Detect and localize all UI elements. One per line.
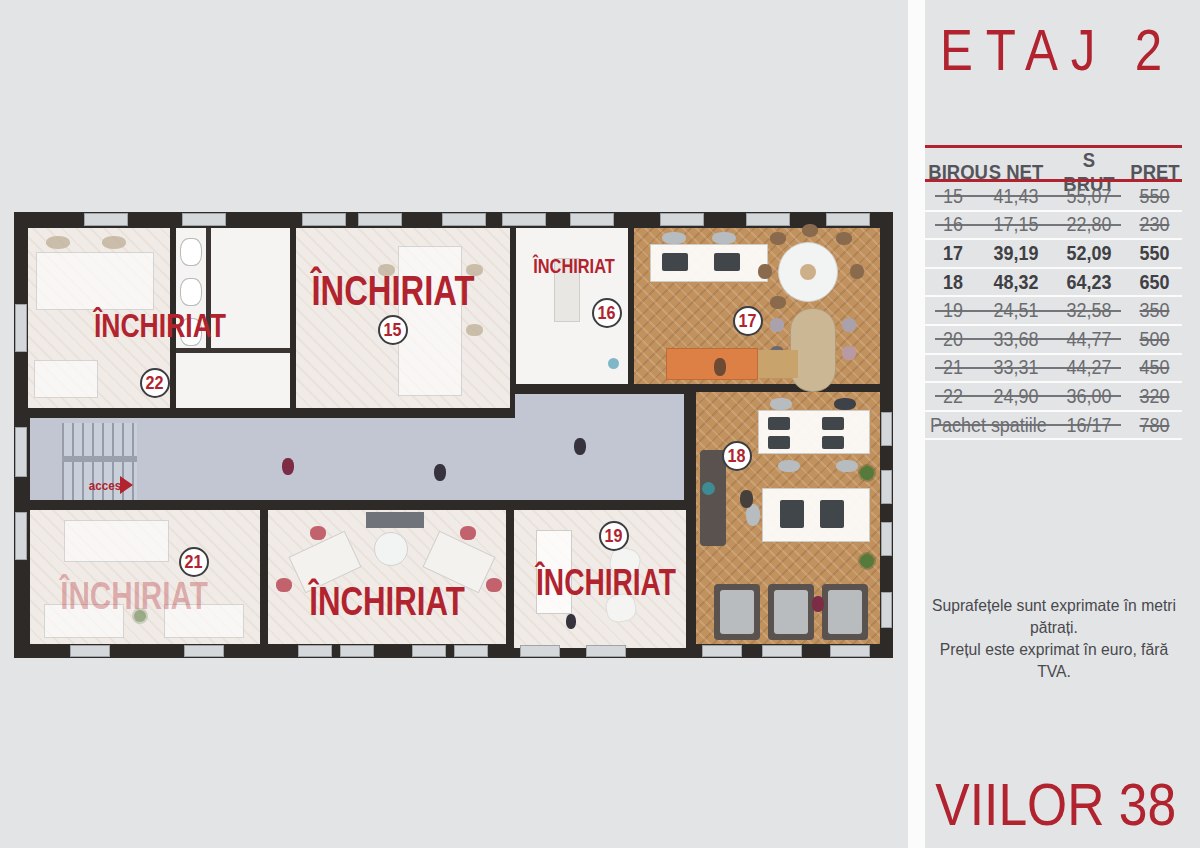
stair-landing (62, 456, 137, 462)
monitor (714, 253, 740, 271)
chair (460, 526, 476, 540)
table-row-19: 19 24,51 32,58 350 (925, 297, 1182, 326)
room-badge-18: 18 (722, 441, 752, 471)
chair (466, 324, 483, 336)
plant (860, 554, 874, 568)
chair (486, 578, 502, 592)
sofa-cushion (720, 590, 754, 634)
desk (36, 252, 154, 310)
building-name: VIILOR 38 (935, 770, 1172, 836)
window (298, 645, 332, 657)
sofa (822, 584, 868, 640)
sofa-cushion (828, 590, 862, 634)
window (570, 213, 614, 226)
cell-brut: 64,23 (1054, 271, 1124, 294)
cell-brut: 44,27 (1054, 356, 1124, 379)
cell-pret: 550 (1129, 242, 1180, 265)
cell-birou: 19 (927, 299, 979, 322)
footnote-line2: Prețul este exprimat în euro, fără TVA. (923, 638, 1185, 682)
monitor (822, 436, 844, 449)
plant (860, 466, 874, 480)
couch (700, 450, 726, 546)
room-badge-21: 21 (179, 547, 209, 577)
cell-net: 41,43 (984, 185, 1048, 208)
room-badge-17: 17 (733, 306, 763, 336)
sofa (768, 584, 814, 640)
chair (662, 232, 686, 244)
window (454, 645, 488, 657)
window (830, 645, 870, 657)
window (15, 304, 27, 352)
cell-pret: 320 (1129, 385, 1180, 408)
bathroom-divider-wall (176, 348, 290, 353)
chair (46, 236, 70, 249)
table-row-21: 21 33,31 44,27 450 (925, 355, 1182, 384)
cell-net: 24,90 (984, 385, 1048, 408)
desk (34, 360, 98, 398)
cell-brut: 52,09 (1054, 242, 1124, 265)
window (586, 645, 626, 657)
rented-label-room22: ÎNCHIRIAT (94, 306, 226, 345)
window (184, 645, 224, 657)
table-row-17: 17 39,19 52,09 550 (925, 240, 1182, 269)
rented-label-room20: ÎNCHIRIAT (309, 579, 464, 624)
chair (770, 296, 786, 309)
desk (64, 520, 169, 562)
room-badge-16: 16 (592, 298, 622, 328)
chair (310, 526, 326, 540)
window (70, 645, 110, 657)
window (358, 213, 402, 226)
room-number: 22 (146, 372, 164, 394)
cell-pret: 350 (1129, 299, 1180, 322)
entrance-door (15, 427, 27, 477)
rented-label-room16: ÎNCHIRIAT (533, 254, 615, 278)
window (762, 645, 802, 657)
cell-birou: 20 (927, 328, 979, 351)
window (746, 213, 790, 226)
cell-birou: 15 (927, 185, 979, 208)
room-badge-15: 15 (378, 315, 408, 345)
cell-pret: 550 (1129, 185, 1180, 208)
window (15, 512, 27, 560)
monitor (768, 417, 790, 430)
cell-net: 33,31 (984, 356, 1048, 379)
floor-title: ETAJ 2 (940, 16, 1168, 80)
floorplan-poster: acces ÎNCHIRIAT ÎNCHIRIAT ÎNCHIRIAT ÎNCH… (0, 0, 1200, 848)
cell-pret: 450 (1129, 356, 1180, 379)
table-center (800, 264, 816, 280)
reception-desk (666, 348, 758, 380)
table-row-18: 18 48,32 64,23 650 (925, 269, 1182, 298)
window (340, 645, 374, 657)
chair (712, 232, 736, 244)
cell-birou: 22 (927, 385, 979, 408)
cell-brut: 22,80 (1054, 213, 1124, 236)
person (574, 438, 586, 455)
cell-net: 24,51 (984, 299, 1048, 322)
table-row-20: 20 33,68 44,77 500 (925, 326, 1182, 355)
cell-pachet-label: Pachet spatiile (930, 414, 1046, 437)
person (282, 458, 294, 475)
window (881, 592, 892, 628)
desk (762, 488, 870, 542)
table-row-15: 15 41,43 55,07 550 (925, 183, 1182, 212)
room-badge-19: 19 (599, 521, 629, 551)
corridor-right (515, 394, 684, 500)
cell-pret: 230 (1129, 213, 1180, 236)
window (881, 522, 892, 556)
room-number: 18 (728, 445, 746, 467)
monitor (820, 500, 844, 528)
rented-watermark-room21: ÎNCHIRIAT (60, 575, 208, 618)
room-number: 15 (384, 319, 402, 341)
window (84, 213, 128, 226)
table-header: BIROU S NET S BRUT PRET (925, 148, 1182, 179)
round-table (374, 532, 408, 566)
price-table: BIROU S NET S BRUT PRET 15 41,43 55,07 5… (925, 145, 1182, 445)
cell-net: 39,19 (984, 242, 1048, 265)
chair (850, 264, 864, 279)
table-row-22: 22 24,90 36,00 320 (925, 383, 1182, 412)
room-badge-22: 22 (140, 368, 170, 398)
cell-net: 48,32 (984, 271, 1048, 294)
access-arrow-icon (120, 476, 133, 494)
chair (276, 578, 292, 592)
cell-brut: 32,58 (1054, 299, 1124, 322)
window (881, 470, 892, 504)
cell-pret: 780 (1129, 414, 1180, 437)
table-row-16: 16 17,15 22,80 230 (925, 212, 1182, 241)
person (714, 358, 726, 376)
chair (836, 232, 852, 245)
chair (770, 398, 792, 410)
cell-birou: 18 (927, 271, 979, 294)
window (660, 213, 704, 226)
cell-pret: 650 (1129, 271, 1180, 294)
cell-brut: 44,77 (1054, 328, 1124, 351)
person (434, 464, 446, 481)
cell-brut: 55,07 (1054, 185, 1124, 208)
chair (770, 318, 784, 332)
window (502, 213, 546, 226)
console-table (366, 512, 424, 528)
window (881, 412, 892, 446)
rented-label-room15: ÎNCHIRIAT (311, 267, 474, 315)
window (302, 213, 346, 226)
chair (842, 318, 856, 332)
window (520, 645, 560, 657)
cell-pret: 500 (1129, 328, 1180, 351)
person (566, 614, 576, 629)
access-label: acces (89, 478, 122, 493)
chair (778, 460, 800, 472)
room-number: 21 (185, 551, 203, 573)
rented-label-room19: ÎNCHIRIAT (536, 562, 676, 604)
chair (758, 264, 772, 279)
chair (834, 398, 856, 410)
chair (802, 224, 818, 237)
monitor (768, 436, 790, 449)
chair (836, 460, 858, 472)
monitor (780, 500, 804, 528)
window (182, 213, 226, 226)
waste-bin (608, 358, 619, 369)
person (740, 490, 753, 508)
room-number: 19 (605, 525, 623, 547)
toilet (180, 238, 202, 266)
stool (702, 482, 715, 495)
side-table (758, 350, 798, 378)
monitor (822, 417, 844, 430)
cell-birou: 16 (927, 213, 979, 236)
cell-brut: 36,00 (1054, 385, 1124, 408)
chair (770, 232, 786, 245)
table-rule-bottom (925, 179, 1182, 182)
cell-net: 33,68 (984, 328, 1048, 351)
cell-brut: 16/17 (1054, 414, 1124, 437)
divider-strip (908, 0, 925, 848)
sofa-cushion (774, 590, 808, 634)
footnote-line1: Suprafețele sunt exprimate în metri pătr… (923, 594, 1185, 638)
table-row-pachet: Pachet spatiile 16/17 780 (925, 412, 1182, 441)
sofa (714, 584, 760, 640)
cell-net: 17,15 (984, 213, 1048, 236)
window (442, 213, 486, 226)
cell-birou: 21 (927, 356, 979, 379)
room-number: 17 (739, 310, 757, 332)
cell-birou: 17 (927, 242, 979, 265)
room-number: 16 (598, 302, 616, 324)
window (702, 645, 742, 657)
monitor (662, 253, 688, 271)
window (412, 645, 446, 657)
footnote: Suprafețele sunt exprimate în metri pătr… (923, 594, 1185, 682)
chair (842, 346, 856, 360)
person (812, 596, 824, 612)
window (826, 213, 870, 226)
chair (102, 236, 126, 249)
floor-plan: acces ÎNCHIRIAT ÎNCHIRIAT ÎNCHIRIAT ÎNCH… (14, 212, 893, 658)
toilet (180, 278, 202, 306)
